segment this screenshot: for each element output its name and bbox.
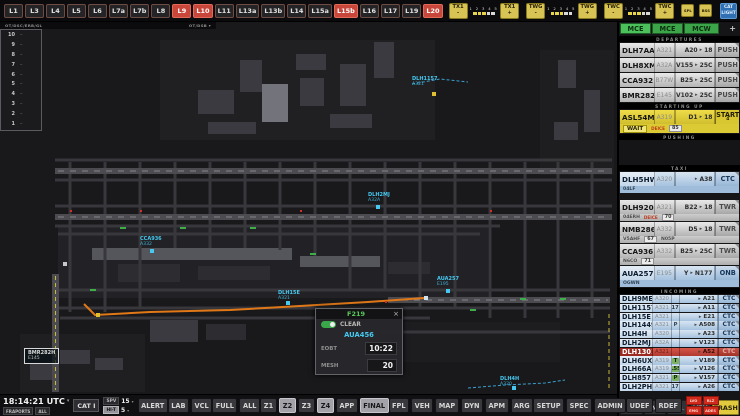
chevron-down-icon: ▾ (132, 399, 134, 404)
scale-tick: – (20, 73, 23, 78)
brightness-minus-button[interactable]: TX1- (449, 3, 468, 19)
view-button-apm[interactable]: APM (485, 398, 509, 413)
filter-chip-fraports[interactable]: FRAPORTS (3, 407, 33, 415)
map-aircraft-label[interactable]: DLH4HA320 (500, 376, 519, 388)
strip-callsign: DLH920 (620, 200, 655, 214)
strip-action-button-onb[interactable]: ONB (715, 266, 739, 280)
strip-callsign: DLH8XM (620, 58, 655, 72)
strip-taxi-tag: L17R (672, 384, 680, 390)
stopbar-button-l13b[interactable]: L13b (261, 4, 285, 18)
strip-callsign: NMB286 (620, 222, 655, 236)
stopbar-button-l7a[interactable]: L7a (109, 4, 128, 18)
popup-eobt-row: EOBT 10:22 (316, 340, 402, 357)
flight-strip-bmr282h[interactable]: BMR282HE145V102▸25CPUSH (620, 88, 739, 102)
scale-number: 4 (5, 92, 15, 97)
view-button-full[interactable]: FULL (212, 398, 237, 413)
strip-route: ▸V126 (680, 365, 718, 373)
stopbar-button-l11[interactable]: L11 (215, 4, 234, 18)
strip-aircraft-type: A332 (655, 244, 675, 258)
route-to: 18 (704, 204, 712, 211)
view-button-arg[interactable]: ARG (511, 398, 534, 413)
scale-tick: – (20, 33, 23, 38)
map-band-right-selector[interactable]: OT/DSB ▾ (189, 23, 211, 28)
action-label: PUSH (717, 77, 737, 84)
route-arrow-icon: ▸ (694, 340, 697, 346)
brightness-level-meter: 1 2 3 4 5 (547, 6, 576, 16)
route-from: B25 (680, 248, 693, 255)
strip-action-button-ctc[interactable]: CTC (718, 330, 739, 338)
level-dot (478, 12, 482, 16)
scale-tick: – (20, 53, 23, 58)
strip-route: Y▸N177 (676, 266, 716, 280)
clear-toggle-label: CLEAR (340, 322, 361, 328)
level-dot (560, 12, 564, 16)
strip-route: B25▸25C (676, 244, 716, 258)
brightness-scale-numbers: 1 2 3 4 5 (470, 6, 499, 11)
scale-tick: – (20, 102, 23, 107)
atc-ground-display: L1L3L4L5L6L7aL7bL8L9L10L11L13aL13bL14L15… (0, 0, 740, 416)
flight-strip-aua257[interactable]: AUA257E195Y▸N177ONB (620, 266, 739, 280)
level-dot (487, 12, 491, 16)
strip-action-button-push[interactable]: PUSH (715, 58, 739, 72)
action-label: ONB (720, 270, 736, 277)
strip-route: ▸A52 (680, 348, 718, 356)
strip-sub-item: DEICE (644, 215, 658, 220)
flight-strip-dlh6ux[interactable]: DLH6UXA319T▸V189CTC (620, 356, 739, 364)
level-dot (646, 12, 650, 16)
stopbar-button-l7b[interactable]: L7b (130, 4, 149, 18)
stopbar-button-l10[interactable]: L10 (193, 4, 212, 18)
strip-aircraft-type: A320 (653, 330, 672, 338)
stopbar-button-l9[interactable]: L9 (172, 4, 191, 18)
strip-taxi-tag: T (672, 358, 679, 364)
clear-toggle[interactable] (321, 321, 336, 328)
level-dot (642, 12, 646, 16)
light-button-spl[interactable]: SPL (681, 4, 694, 17)
action-label: CTC (723, 314, 736, 320)
strip-callsign: AUA257 (620, 266, 655, 280)
strip-route: V155▸25C (676, 58, 716, 72)
strip-action-button-push[interactable]: PUSH (715, 88, 739, 102)
scale-tick: – (20, 82, 23, 87)
aircraft-position-dot (446, 289, 450, 293)
strip-action-button-ctc[interactable]: CTC (718, 321, 739, 329)
strip-action-button-ctc[interactable]: CTC (718, 339, 739, 347)
action-label: PUSH (717, 47, 737, 54)
flight-strip-dlh4h[interactable]: DLH4HA320▸A23CTC (620, 330, 739, 338)
flight-strip-dlh1301[interactable]: DLH1301A321▸A52CTC (620, 348, 739, 356)
route-to: 18 (704, 47, 712, 54)
stopbar-button-l17[interactable]: L17 (381, 4, 400, 18)
route-to: V157 (699, 375, 715, 381)
alert-button-emg[interactable]: EMG (686, 406, 702, 415)
airport-map-area[interactable]: OT/DSC/ERB/GL OT/DSB ▾ 10–9–8–7–6–5–4–3–… (0, 22, 617, 394)
scale-tick: – (20, 43, 23, 48)
strip-sections: DEPARTURESDLH7AAA321A20▸18PUSHDLH8XMA32A… (619, 36, 740, 392)
stopbar-button-l6[interactable]: L6 (88, 4, 107, 18)
strip-sub-row: 04ERHDEICE70 (620, 214, 739, 221)
view-button-setup[interactable]: SETUP (533, 398, 564, 413)
scale-number: 8 (5, 53, 15, 58)
view-button-udef[interactable]: UDEF (626, 398, 653, 413)
popup-header[interactable]: F219 × (316, 309, 402, 319)
route-from: Y (684, 270, 688, 277)
zoom-scale-panel[interactable]: 10–9–8–7–6–5–4–3–2–1– (0, 29, 42, 131)
flight-strip-dlh920[interactable]: DLH920A321B22▸18TWR (620, 200, 739, 214)
view-button-rdef[interactable]: RDEF (655, 398, 682, 413)
light-button-bss[interactable]: BSS (699, 4, 712, 17)
plus-icon: + (663, 11, 667, 17)
route-arrow-icon: ▸ (700, 47, 703, 53)
strip-action-button-twr[interactable]: TWR (715, 222, 739, 236)
cat-mode-button[interactable]: CAT I (73, 399, 99, 412)
aircraft-position-dot (424, 296, 428, 300)
strip-route: ▸A21 (680, 295, 718, 303)
brightness-level-meter: 1 2 3 4 5 (470, 6, 499, 16)
view-button-spec[interactable]: SPEC (566, 398, 592, 413)
strip-action-button-push[interactable]: PUSH (715, 73, 739, 87)
scale-tick: – (20, 92, 23, 97)
action-label: TWR (719, 204, 736, 211)
flight-strip-dlh1449[interactable]: DLH1449A321P▸A508CTC (620, 321, 739, 329)
route-from: D1 (688, 114, 697, 121)
action-label: CTC (723, 375, 736, 381)
strip-aircraft-type: A319 (653, 365, 672, 373)
brightness-level-lights (551, 12, 573, 16)
route-from: B22 (685, 204, 698, 211)
strip-spacer: L17R (672, 383, 680, 391)
strip-action-button-push[interactable]: PUSH (715, 43, 739, 57)
route-arrow-icon: ▸ (695, 77, 698, 83)
aircraft-position-dot (63, 262, 67, 266)
stopbar-lights-bar: L1L3L4L5L6L7aL7bL8L9L10L11L13aL13bL14L15… (0, 0, 740, 22)
aircraft-type: A321 (278, 296, 300, 302)
flight-strip-dlh2ph[interactable]: DLH2PHA321L17R▸A26CTC (620, 383, 739, 391)
alert-button-ades[interactable]: ADES (703, 406, 719, 415)
hit-label: HI-T (103, 406, 118, 414)
popup-mesh-value[interactable]: 20 (367, 359, 397, 372)
brightness-plus-button[interactable]: TWG+ (578, 3, 597, 19)
strip-sub-item: DEICE (651, 126, 665, 131)
flight-strip-dlh1157[interactable]: DLH1157A321L17R▸A11CTC (620, 304, 739, 312)
view-button-map[interactable]: MAP (435, 398, 459, 413)
strip-sub-item: OGWN (623, 281, 640, 286)
scale-number: 10 (5, 33, 15, 38)
extra-light-buttons: SPLBSS (676, 4, 712, 17)
scale-row: 9– (5, 43, 37, 48)
strip-action-button-twr[interactable]: TWR (715, 244, 739, 258)
strip-route: ▸A26 (680, 383, 718, 391)
strip-action-button-ctc[interactable]: CTC (718, 304, 739, 312)
strip-route: ▸E21 (680, 313, 718, 321)
action-label: PUSH (717, 62, 737, 69)
strip-action-button-ctc[interactable]: CTC (718, 356, 739, 364)
stopbar-button-l14[interactable]: L14 (287, 4, 306, 18)
strip-aircraft-type: A319 (655, 110, 675, 124)
action-label: CTC (723, 305, 736, 311)
strip-action-button-ctc[interactable]: CTC (718, 383, 739, 391)
strip-section-header-incoming: INCOMING (619, 288, 740, 294)
strip-callsign: CCA936 (620, 244, 655, 258)
view-button-final[interactable]: FINAL (360, 398, 389, 413)
route-arrow-icon: ▸ (698, 349, 701, 355)
strip-callsign: ASL54M (620, 110, 655, 124)
view-button-alert[interactable]: ALERT (138, 398, 168, 413)
strip-action-button-ctc[interactable]: CTC (715, 172, 739, 186)
route-to: A26 (703, 384, 715, 390)
hit-selector[interactable]: HI-T 5 ▾ (103, 406, 133, 414)
strip-callsign: DLH6UX (620, 356, 653, 364)
route-arrow-icon: ▸ (699, 314, 702, 320)
aircraft-type: A332 (140, 242, 162, 248)
route-arrow-icon: ▸ (694, 375, 697, 381)
view-button-z1[interactable]: Z1 (260, 398, 277, 413)
view-button-vcl[interactable]: VCL (191, 398, 212, 413)
route-to: A508 (699, 322, 715, 328)
map-aircraft-label[interactable]: AUA257E195 (437, 276, 459, 288)
map-band-left-text: OT/DSC/ERB/GL (5, 23, 42, 28)
strip-sub-row: V5AHF67N05P (620, 236, 739, 243)
flight-strip-dlh5hw[interactable]: DLH5HWA320P▸A38CTC (620, 172, 739, 186)
route-arrow-icon: ▸ (695, 248, 698, 254)
strip-callsign: DLH9ME (620, 295, 653, 303)
level-dot (569, 12, 573, 16)
route-arrow-icon: ▸ (695, 92, 698, 98)
map-aircraft-label[interactable]: BMR282HE145 (24, 348, 59, 364)
stopbar-button-l3[interactable]: L3 (25, 4, 44, 18)
strip-callsign: DLH2MJ (620, 339, 653, 347)
flight-strip-dlh9me[interactable]: DLH9MEA320▸A21CTC (620, 295, 739, 303)
scale-number: 9 (5, 43, 15, 48)
flight-strip-dlh7aa[interactable]: DLH7AAA321A20▸18PUSH (620, 43, 739, 57)
flight-strip-dlh66a[interactable]: DLH66AA319L55▸V126CTC (620, 365, 739, 373)
strip-sub-item: 85 (669, 125, 682, 132)
route-arrow-icon: ▸ (698, 331, 701, 337)
flight-strip-dlh2mj[interactable]: DLH2MJA32A▸V123CTC (620, 339, 739, 347)
strip-sub-item: 70 (662, 214, 675, 221)
stopbar-button-l8[interactable]: L8 (151, 4, 170, 18)
strip-action-button-ctc[interactable]: CTC (718, 313, 739, 321)
view-button-app[interactable]: APP (336, 398, 358, 413)
view-button-lab[interactable]: LAB (168, 398, 189, 413)
strip-action-button-ctc[interactable]: CTC (718, 374, 739, 382)
flight-strip-cca932[interactable]: CCA932B77WB25▸25CPUSH (620, 73, 739, 87)
strip-aircraft-type: E195 (655, 266, 675, 280)
strip-section-header-taxi: TAXI (619, 165, 740, 171)
bottom-control-bar: 18:14:21 UTC ▾ FRAPORTSALL CAT I SPV 15 … (0, 394, 617, 416)
route-arrow-icon: ▸ (695, 62, 698, 68)
plus-icon: + (507, 11, 511, 17)
button-group-3: Z1Z2Z3Z4APPFINAL (260, 398, 389, 413)
brightness-plus-button[interactable]: TX1+ (500, 3, 519, 19)
flight-strip-cca936[interactable]: CCA936A332B25▸25CTWR (620, 244, 739, 258)
brightness-minus-button[interactable]: TWG- (526, 3, 545, 19)
view-button-veh[interactable]: VEH (411, 398, 433, 413)
popup-callsign[interactable]: AUA456 (316, 330, 402, 340)
brightness-level-lights (473, 12, 495, 16)
filter-chip-all[interactable]: ALL (35, 407, 49, 415)
scale-tick: – (20, 112, 23, 117)
stopbar-button-l1[interactable]: L1 (4, 4, 23, 18)
view-button-admin[interactable]: ADMIN (594, 398, 626, 413)
utc-clock[interactable]: 18:14:21 UTC ▾ (3, 396, 69, 406)
strip-sub-item: 71 (641, 258, 654, 265)
brightness-group-twg: TWG-1 2 3 4 5TWG+ (526, 3, 597, 19)
strip-aircraft-type: A319 (653, 356, 672, 364)
route-from: V102 (676, 92, 693, 99)
brightness-scale-numbers: 1 2 3 4 5 (547, 6, 576, 11)
strip-callsign: DLH1157 (620, 304, 653, 312)
minus-icon: - (535, 11, 537, 17)
scale-number: 7 (5, 63, 15, 68)
strip-callsign: DLH66A (620, 365, 653, 373)
strip-spacer (672, 295, 680, 303)
strip-route: ▸A23 (680, 330, 718, 338)
strip-aircraft-type: A321 (653, 313, 672, 321)
stopbar-button-l20[interactable]: L20 (423, 4, 442, 18)
strip-bay-tab-mce-0[interactable]: MCE (620, 23, 651, 34)
view-button-z2[interactable]: Z2 (279, 398, 296, 413)
route-arrow-icon: ▸ (700, 226, 703, 232)
strip-bay-tab-mcw-2[interactable]: MCW (684, 23, 719, 34)
map-aircraft-label[interactable]: DLH1157A321 (412, 76, 437, 88)
cat-light-button[interactable]: CAT LIGHT (720, 3, 736, 19)
aircraft-type: A320 (500, 382, 519, 388)
route-from: V155 (676, 62, 693, 69)
map-aircraft-label[interactable]: CCA936A332 (140, 236, 162, 248)
stopbar-button-l15b[interactable]: L15b (334, 4, 358, 18)
strip-route: D1▸18 (676, 110, 716, 124)
level-dot (491, 12, 495, 16)
strip-sub-item: 67 (644, 236, 657, 243)
strip-callsign: DLH857 (620, 374, 653, 382)
scale-row: 1– (5, 122, 37, 127)
action-label: PUSH (717, 92, 737, 99)
spv-value: 15 (121, 398, 129, 405)
route-arrow-icon: ▸ (698, 296, 701, 302)
strip-aircraft-type: A321 (653, 321, 672, 329)
hit-value: 5 (121, 407, 125, 414)
button-group-1: LABVCL (168, 398, 213, 413)
route-arrow-icon: ▸ (694, 366, 697, 372)
strip-action-button-ctc[interactable]: CTC (718, 365, 739, 373)
map-aircraft-label[interactable]: DLH15EA321 (278, 290, 300, 302)
view-button-z4[interactable]: Z4 (317, 398, 334, 413)
level-dot (637, 12, 641, 16)
stopbar-button-l16[interactable]: L16 (360, 4, 379, 18)
spv-label: SPV (103, 397, 119, 405)
strip-sub-item: 04LF (623, 187, 635, 192)
strip-aircraft-type: A332 (655, 222, 675, 236)
brightness-plus-button[interactable]: TWC+ (655, 3, 674, 19)
strip-action-button-ctc[interactable]: CTC (718, 348, 739, 356)
strip-sub-item: V5AHF (623, 237, 640, 242)
minus-icon: - (612, 11, 614, 17)
route-to: 25C (700, 248, 713, 255)
route-to: 25C (700, 77, 713, 84)
scale-tick: – (20, 63, 23, 68)
flight-strip-asl54m[interactable]: ASL54MA319D1▸18START4 (620, 110, 739, 124)
brightness-level-lights (628, 12, 650, 16)
route-arrow-icon: ▸ (698, 305, 701, 311)
brightness-group-twc: TWC-1 2 3 4 5TWC+ (604, 3, 675, 19)
strip-callsign: DLH5HW (620, 172, 655, 186)
popup-mesh-row: MESH 20 (316, 357, 402, 374)
strip-callsign: CCA932 (620, 73, 655, 87)
aircraft-type: A321 (412, 82, 437, 88)
button-group-0: ALERT (138, 398, 168, 413)
aircraft-type: A32A (368, 198, 390, 204)
alert-button-rlz[interactable]: RLZ (703, 396, 719, 405)
spv-selector[interactable]: SPV 15 ▾ (103, 397, 133, 405)
scale-number: 6 (5, 73, 15, 78)
popup-eobt-value[interactable]: 10:22 (365, 342, 397, 355)
stopbar-button-l5[interactable]: L5 (67, 4, 86, 18)
strip-spacer: L17R (672, 304, 680, 312)
stopbar-button-l4[interactable]: L4 (46, 4, 65, 18)
flight-strip-nmb286[interactable]: NMB286A332D5▸18TWR (620, 222, 739, 236)
flight-strip-dlh8xm[interactable]: DLH8XMA32AV155▸25CPUSH (620, 58, 739, 72)
strip-spacer: T (672, 356, 680, 364)
strip-route: B25▸25C (676, 73, 716, 87)
strip-action-button-start[interactable]: START4 (715, 110, 739, 124)
stopbar-button-l19[interactable]: L19 (402, 4, 421, 18)
view-button-fpl[interactable]: FPL (389, 398, 410, 413)
strip-action-button-twr[interactable]: TWR (715, 200, 739, 214)
flight-strip-dlh15e[interactable]: DLH15EA321▸E21CTC (620, 313, 739, 321)
view-button-dyn[interactable]: DYN (461, 398, 483, 413)
route-arrow-icon: ▸ (700, 204, 703, 210)
view-button-z3[interactable]: Z3 (298, 398, 315, 413)
close-icon[interactable]: × (393, 311, 399, 318)
view-button-all[interactable]: ALL (239, 398, 260, 413)
route-arrow-icon: ▸ (694, 358, 697, 364)
add-bay-tab-button[interactable]: + (726, 24, 739, 33)
strip-sub-item: WAIT (623, 125, 647, 133)
level-dot (628, 12, 632, 16)
route-arrow-icon: ▸ (695, 176, 698, 182)
action-label: CTC (723, 349, 736, 355)
strip-route: B22▸18 (676, 200, 716, 214)
map-aircraft-label[interactable]: DLH2MJA32A (368, 192, 390, 204)
airport-diagram (0, 22, 617, 394)
alert-state-grid: LVORLZEMGADES (686, 396, 719, 415)
strip-action-button-ctc[interactable]: CTC (718, 295, 739, 303)
route-from: D5 (688, 226, 697, 233)
stopbar-button-l13a[interactable]: L13a (236, 4, 260, 18)
strip-aircraft-type: A321 (653, 374, 672, 382)
flight-strip-dlh857[interactable]: DLH857A321P▸V157CTC (620, 374, 739, 382)
flight-strip-panel: MCEMCEMCW+ DEPARTURESDLH7AAA321A20▸18PUS… (617, 22, 740, 416)
route-from: A20 (685, 47, 698, 54)
route-to: A23 (703, 331, 715, 337)
strip-callsign: DLH4H (620, 330, 653, 338)
action-label: CTC (723, 358, 736, 364)
route-from: B25 (680, 77, 693, 84)
plus-icon: + (585, 11, 589, 17)
strip-route: ▸V123 (680, 339, 718, 347)
strip-spacer: P (672, 321, 680, 329)
alert-button-lvo[interactable]: LVO (686, 396, 702, 405)
scale-row: 3– (5, 102, 37, 107)
action-label: CTC (723, 366, 736, 372)
stopbar-button-l15a[interactable]: L15a (308, 4, 332, 18)
brightness-scale-numbers: 1 2 3 4 5 (625, 6, 654, 11)
strip-route: ▸A11 (680, 304, 718, 312)
brightness-minus-button[interactable]: TWC- (604, 3, 623, 19)
strip-spacer (672, 348, 680, 356)
strip-bay-tab-mce-1[interactable]: MCE (652, 23, 683, 34)
